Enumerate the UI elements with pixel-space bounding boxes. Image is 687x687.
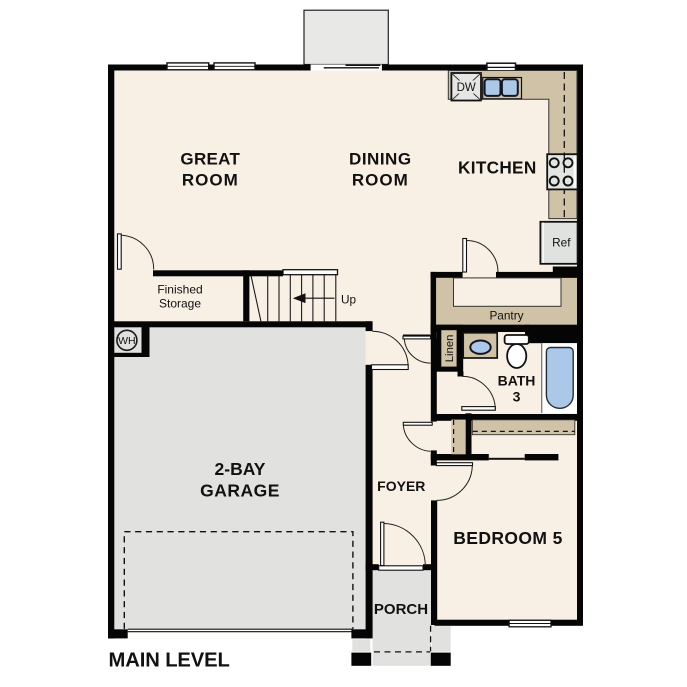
svg-text:DINING: DINING [349, 149, 412, 168]
svg-text:Ref: Ref [552, 235, 571, 249]
svg-text:FOYER: FOYER [377, 478, 425, 494]
svg-text:DW: DW [457, 82, 476, 94]
svg-text:BEDROOM 5: BEDROOM 5 [453, 528, 563, 548]
svg-text:Finished: Finished [157, 282, 202, 296]
svg-text:Linen: Linen [444, 335, 456, 363]
svg-text:3: 3 [513, 388, 521, 404]
svg-text:GARAGE: GARAGE [200, 481, 280, 501]
svg-text:PORCH: PORCH [374, 601, 428, 618]
svg-text:KITCHEN: KITCHEN [458, 158, 537, 178]
svg-text:WH: WH [118, 335, 136, 347]
svg-text:Storage: Storage [159, 297, 201, 311]
svg-text:2-BAY: 2-BAY [215, 459, 266, 479]
svg-text:ROOM: ROOM [182, 170, 239, 189]
svg-text:BATH: BATH [498, 372, 536, 388]
svg-text:Up: Up [341, 292, 357, 306]
svg-text:GREAT: GREAT [180, 149, 240, 168]
svg-text:ROOM: ROOM [352, 170, 409, 189]
svg-text:MAIN LEVEL: MAIN LEVEL [109, 649, 230, 671]
svg-text:Pantry: Pantry [489, 308, 523, 322]
